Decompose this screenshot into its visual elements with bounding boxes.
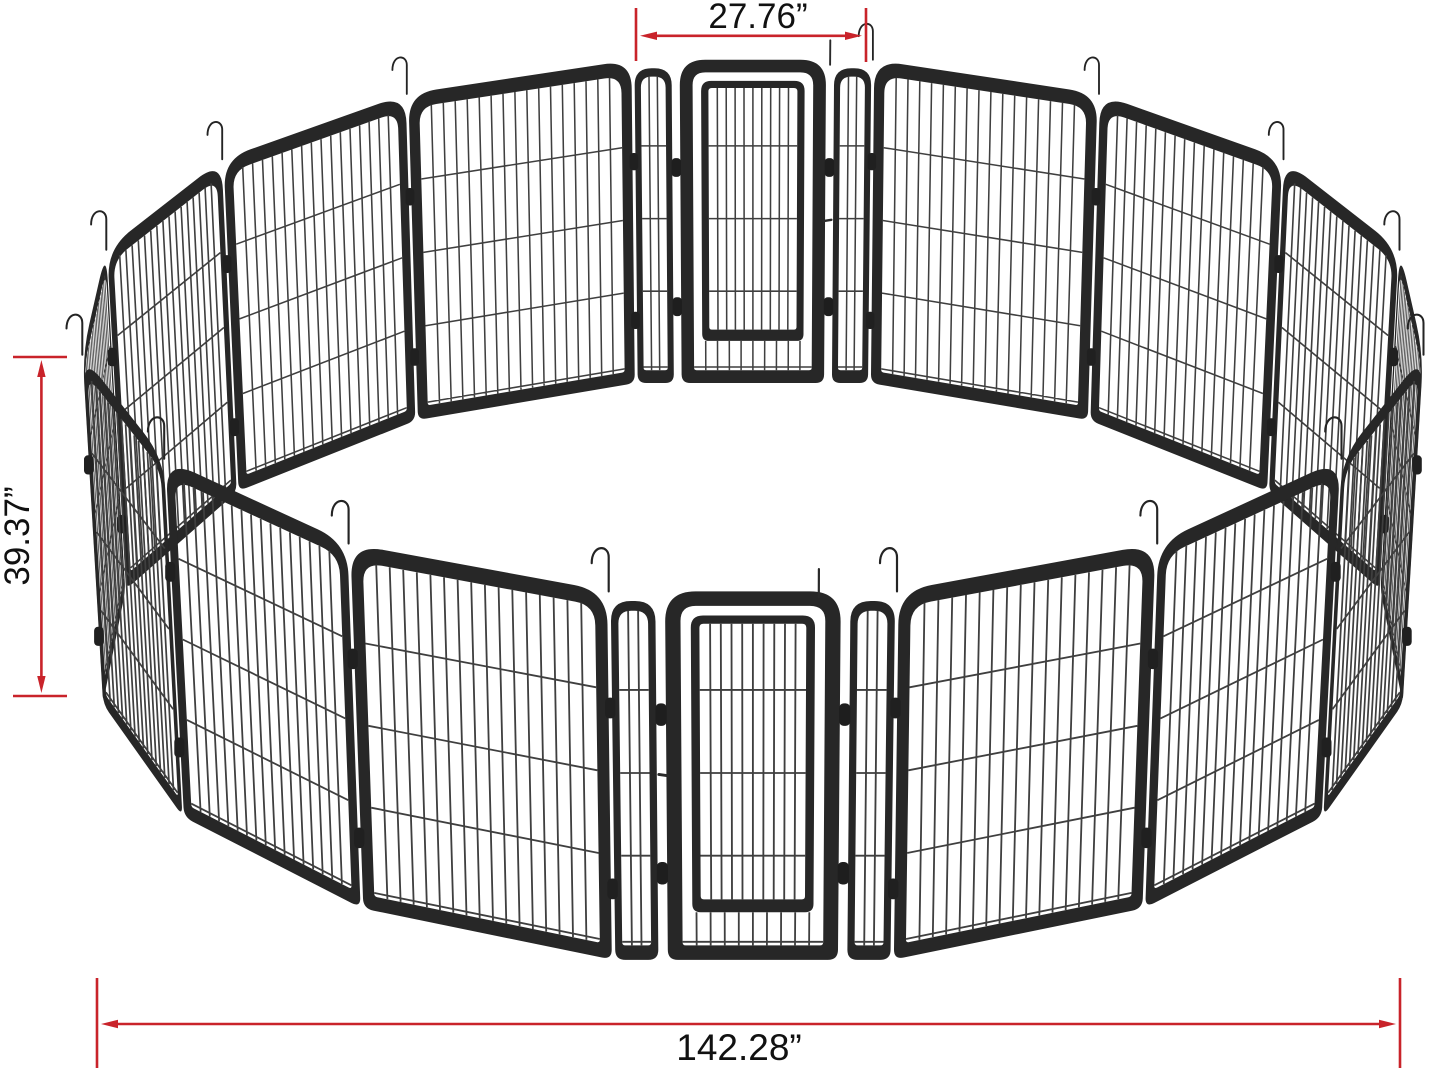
svg-text:27.76”: 27.76” — [708, 0, 807, 36]
svg-text:39.37”: 39.37” — [0, 486, 37, 585]
svg-text:142.28”: 142.28” — [676, 1027, 802, 1068]
